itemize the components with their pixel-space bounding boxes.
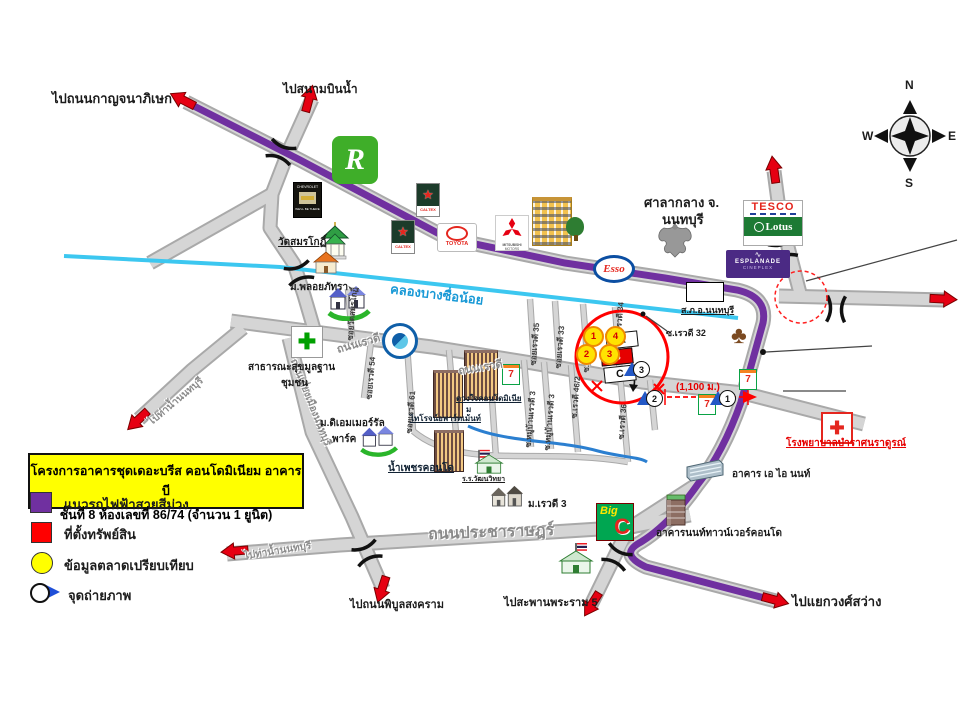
health-center-icon: ✚ <box>291 326 323 358</box>
school-icon-1 <box>474 448 504 475</box>
mitsubishi-diamonds-icon <box>496 216 528 238</box>
mitsubishi-text2: MOTORS <box>496 247 528 251</box>
red-cross-icon: ✚ <box>829 419 844 437</box>
soi32-dot <box>641 312 646 317</box>
tesco-text: TESCO <box>744 201 802 213</box>
photo-point-1: 1 <box>710 388 742 412</box>
photo-point-3: 3 <box>624 359 656 383</box>
ploy-phattra-label: ม.พลอยภัทรา <box>290 280 348 295</box>
emerald-park-label-2: พาร์ค <box>332 432 356 447</box>
ai-nont-label: อาคาร เอ ไอ นนท์ <box>732 467 810 482</box>
gas-station-logo <box>382 323 418 359</box>
nont-tower-building-icon <box>663 493 689 527</box>
chevrolet-text: CHEVROLET <box>294 183 321 189</box>
nont-tower-label: อาคารนนท์ทาวน์เวอร์คอนโด <box>656 526 782 541</box>
nampetch-label: น้ำเพชรคอนโด <box>388 461 454 476</box>
market-point-2: 2 <box>576 344 597 365</box>
market-point-3: 3 <box>599 344 620 365</box>
legend-photo-icon <box>30 583 64 603</box>
emerald-park-label-1: ม.ดิเอมเมอร์รัล <box>320 416 385 431</box>
appraisal-map: N S W E R CHEVROLET WE'LL BE THERE ★ CAL… <box>0 0 960 720</box>
tree-icon <box>566 217 586 243</box>
seven-eleven-icon-1: 7 <box>502 364 520 385</box>
caltex-star-icon: ★ <box>422 187 434 203</box>
legend-red-label: ที่ตั้งทรัพย์สิน <box>64 524 136 545</box>
green-cross-icon: ✚ <box>298 331 316 353</box>
mu-rewadee3-label: ม.เรวดี 3 <box>528 497 567 512</box>
lotus-text: Lotus <box>766 221 793 233</box>
duangjai-label-2: ม <box>466 403 471 416</box>
esso-text: Esso <box>603 263 624 275</box>
esplanade-sign: ∿ ESPLANADE CINEPLEX <box>726 250 790 278</box>
chevrolet-bowtie-icon <box>299 192 316 204</box>
chevrolet-tagline: WE'LL BE THERE <box>294 207 321 211</box>
legend-purple-swatch <box>30 492 52 513</box>
bigc-logo: Big C <box>596 503 634 541</box>
soi-rewadee32-label: ซ.เรวดี 32 <box>666 326 706 340</box>
dest-wongsawang: ไปแยกวงศ์สว่าง <box>792 591 881 612</box>
caltex-star-icon: ★ <box>397 224 409 240</box>
tesco-lotus-sign: TESCO Lotus <box>743 200 803 246</box>
mu-rewadee3-houses-icon <box>489 485 531 513</box>
police-station-box <box>686 282 724 302</box>
wat-samonkot-label: วัดสมรโกฏิ์ <box>278 235 326 250</box>
toyota-sign: TOYOTA <box>437 223 477 252</box>
seven-eleven-icon-2: 7 <box>739 369 757 390</box>
caltex-sign-1: ★ CALTEX <box>416 183 440 217</box>
pracharat-road-label: ถนนประชาราษฎร์ <box>428 518 555 547</box>
toyota-text: TOYOTA <box>438 241 476 247</box>
legend-photo-label: จุดถ่ายภาพ <box>68 585 131 606</box>
compass-w: W <box>862 129 873 143</box>
esso-logo: Esso <box>593 255 635 283</box>
legend-yellow-swatch <box>31 552 53 574</box>
chevrolet-sign: CHEVROLET WE'LL BE THERE <box>293 182 322 218</box>
school-icon-2 <box>558 543 594 575</box>
legend-purple-label: แนวรถไฟฟ้าสายสีม่วง <box>64 494 189 515</box>
bigc-c-text: C <box>614 514 630 540</box>
compass-n: N <box>905 78 914 92</box>
compass-rose-icon <box>862 78 958 190</box>
robinson-logo: R <box>332 136 378 184</box>
compass-e: E <box>948 129 956 143</box>
compass-s: S <box>905 176 913 190</box>
landmark-emblem-icon: ♣ <box>731 324 747 348</box>
mitsubishi-sign: MITSUBISHI MOTORS <box>495 215 529 251</box>
toyota-oval-icon <box>446 226 468 241</box>
police-station-label: ส.ภ.อ.นนทบุรี <box>681 303 734 317</box>
route-dot <box>760 349 766 355</box>
tesco-dashes <box>750 213 796 215</box>
photo-point-2: 2 <box>637 388 669 412</box>
dest-kanchanaphisek: ไปถนนกาญจนาภิเษก <box>52 88 172 109</box>
legend-red-swatch <box>31 522 52 543</box>
lotus-flower-icon <box>754 222 764 232</box>
caltex-text: CALTEX <box>392 243 414 249</box>
city-hall-label-2: นนทบุรี <box>662 209 704 230</box>
caltex-text: CALTEX <box>417 206 439 212</box>
health-center-label-1: สาธารณะสุขมูลฐาน <box>248 360 335 375</box>
esplanade-swirl-icon: ∿ <box>726 250 790 259</box>
dest-rama5: ไปสะพานพระราม 5 <box>504 593 598 611</box>
caltex-sign-2: ★ CALTEX <box>391 220 415 254</box>
dest-sanambinnam: ไปสนามบินน้ำ <box>283 80 358 99</box>
compass: N S W E <box>862 78 958 190</box>
robinson-letter: R <box>345 143 365 177</box>
cineplex-text: CINEPLEX <box>726 265 790 270</box>
legend-yellow-label: ข้อมูลตลาดเปรียบเทียบ <box>64 555 194 576</box>
dest-phibunsongkhram: ไปถนนพิบูลสงคราม <box>350 595 444 613</box>
ai-nont-building-icon <box>685 457 727 485</box>
health-center-label-2: ชุมชน <box>281 376 308 391</box>
school-1-label: ร.ร.วัฒนวิทยา <box>462 474 505 485</box>
hospital-label: โรงพยาบาลบำราศนราดูรณ์ <box>786 436 906 451</box>
